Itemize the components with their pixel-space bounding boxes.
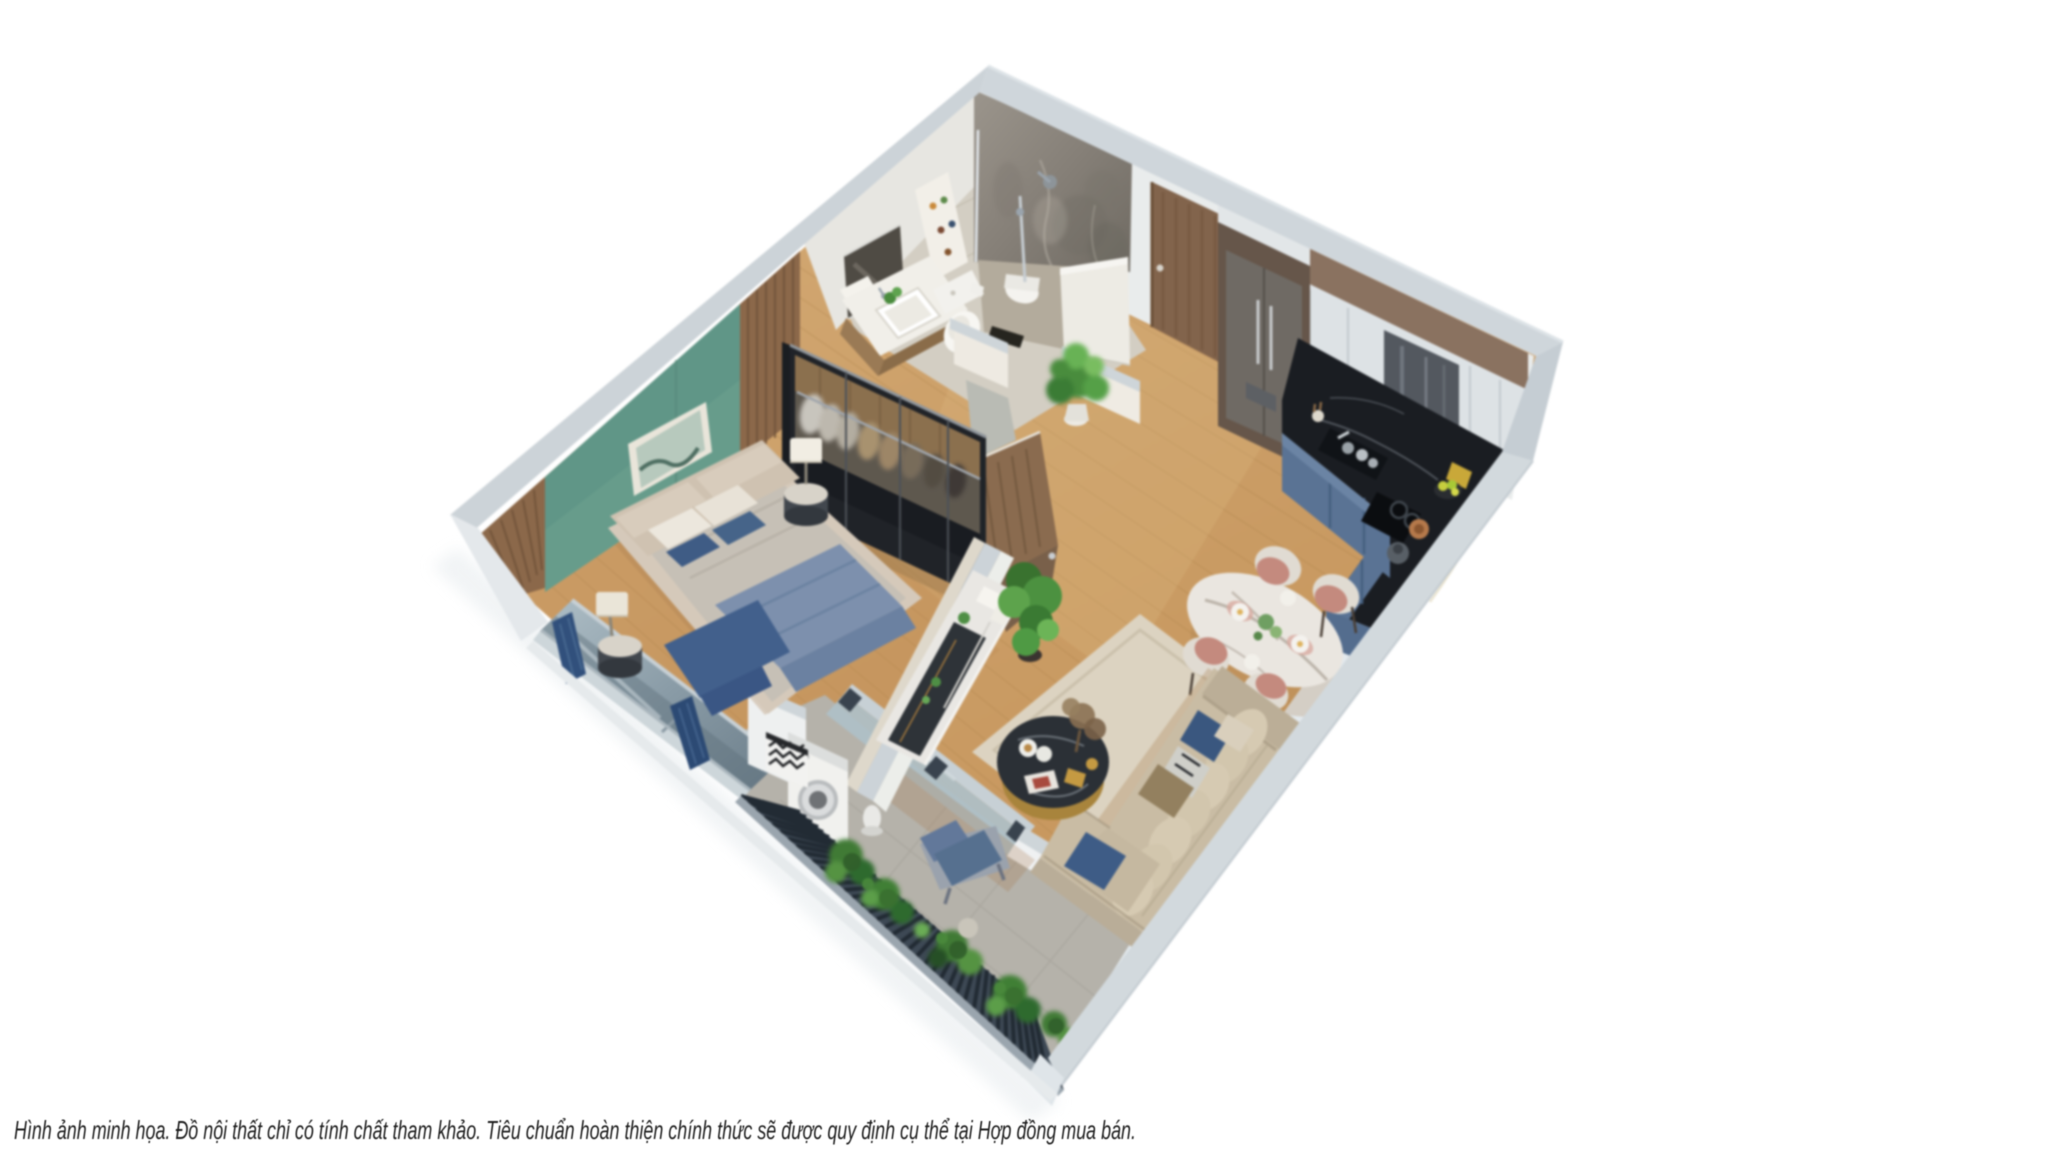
svg-text:Hình ảnh minh họa. Đồ nội thất: Hình ảnh minh họa. Đồ nội thất chỉ có tí…	[14, 1115, 1136, 1145]
